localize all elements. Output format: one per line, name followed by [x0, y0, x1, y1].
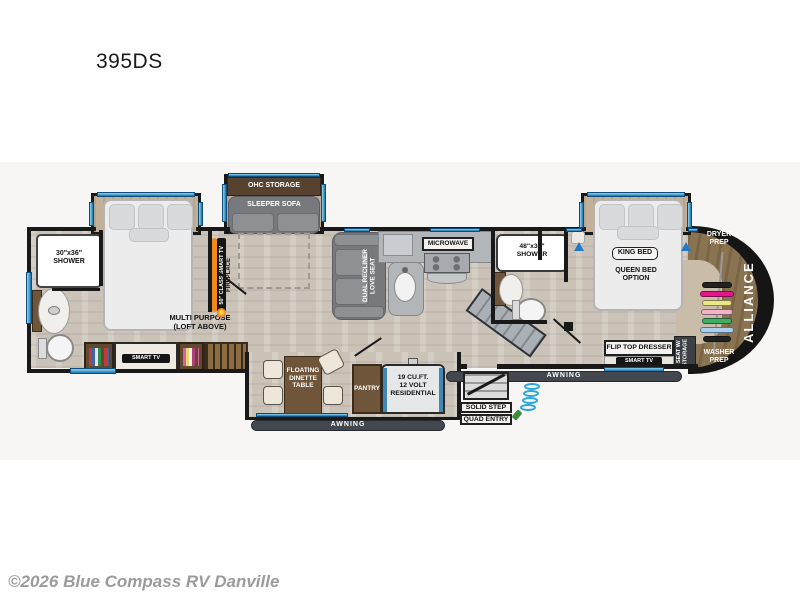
garment [700, 327, 734, 333]
window [26, 272, 32, 324]
wardrobe [178, 342, 204, 372]
dinette-chair [263, 360, 283, 379]
shower1-label: 30"x36" SHOWER [38, 250, 100, 267]
utility-hose [523, 390, 539, 397]
sleeper-sofa-label: SLEEPER SOFA [230, 201, 318, 209]
toilet1-tank [38, 338, 47, 359]
wall [30, 227, 96, 231]
sink1-drain [48, 306, 60, 315]
smart-tv-bed1-label: SMART TV [132, 355, 160, 361]
alliance-brand-label: ALLIANCE [741, 238, 759, 366]
island-faucet [402, 267, 408, 273]
flip-top-dresser-label: FLIP TOP DRESSER [607, 344, 672, 352]
stove [424, 253, 470, 273]
window [687, 202, 692, 228]
fireplace-label: FIREPLACE [226, 240, 236, 310]
bed1-cushion [129, 228, 169, 242]
window [222, 184, 227, 222]
utility-hose [522, 397, 538, 404]
garment [703, 336, 731, 342]
garment [702, 282, 732, 288]
toilet1-bowl [46, 334, 74, 362]
bed2-pillow [657, 204, 683, 230]
window [321, 184, 326, 222]
window [256, 413, 348, 417]
multi-purpose-label: MULTI PURPOSE (LOFT ABOVE) [138, 314, 262, 332]
counter-prep-area [383, 234, 413, 256]
bed1-pillow [138, 204, 164, 230]
microwave-label: MICROWAVE [428, 240, 468, 248]
wall [538, 230, 542, 260]
fridge-trim [439, 368, 443, 412]
washer-prep-label: WASHER PREP [696, 349, 742, 366]
queen-option-label: QUEEN BED OPTION [606, 267, 666, 284]
hanging-clothes [89, 348, 109, 366]
bed1-pillow [167, 204, 193, 230]
king-bed-tag: KING BED [612, 247, 658, 260]
window [579, 202, 584, 228]
solid-step-label: SOLID STEP [466, 404, 506, 412]
ohc-storage-label: OHC STORAGE [248, 182, 300, 190]
king-bed-label: KING BED [618, 249, 652, 257]
dryer-prep-label: DRYER PREP [698, 231, 740, 248]
bed2-cushion [617, 226, 659, 240]
wall [491, 320, 547, 324]
toilet2-tank [512, 300, 520, 320]
wall [196, 227, 230, 231]
awning-right-label: AWNING [547, 372, 582, 380]
garment [701, 309, 733, 315]
vent-icon [574, 242, 584, 251]
seat-storage-label: SEAT W/ STORAGE [676, 337, 694, 367]
microwave: MICROWAVE [422, 237, 474, 251]
island-sink [394, 272, 416, 302]
pantry: PANTRY [352, 364, 382, 414]
window [228, 173, 320, 177]
wall [27, 369, 249, 373]
ohc-storage: OHC STORAGE [227, 177, 321, 196]
quad-entry-tag: QUAD ENTRY [460, 414, 512, 425]
awning-left-label: AWNING [331, 421, 366, 429]
wall [208, 230, 212, 312]
floorplan-page: 395DS ©2026 Blue Compass RV Danville DRY… [0, 0, 800, 600]
smart-tv-bed1: SMART TV [122, 354, 170, 363]
window [430, 228, 480, 232]
window [344, 228, 370, 232]
loft-outline [238, 233, 310, 289]
page-title: 395DS [96, 50, 163, 74]
fireplace-flame-icon [217, 308, 226, 317]
awning-left: AWNING [251, 420, 445, 431]
dinette-label: FLOATING DINETTE TABLE [284, 367, 322, 390]
solid-step-tag: SOLID STEP [460, 402, 512, 413]
garment [700, 291, 734, 297]
window [566, 228, 582, 232]
fridge-label: 19 CU.FT. 12 VOLT RESIDENTIAL [387, 374, 439, 398]
garment [702, 300, 732, 306]
wall [564, 230, 568, 282]
window [198, 202, 203, 226]
window [587, 192, 685, 197]
loft-stairs [204, 342, 248, 372]
stove-front [427, 273, 467, 284]
dinette-chair [323, 386, 343, 405]
wall [497, 364, 698, 369]
utility-hose [524, 383, 540, 390]
window [70, 368, 116, 374]
window [688, 228, 698, 232]
wall [99, 230, 103, 286]
utility-hose [520, 404, 536, 411]
flip-top-dresser: FLIP TOP DRESSER [604, 340, 674, 356]
copyright-watermark: ©2026 Blue Compass RV Danville [8, 572, 279, 592]
window [89, 202, 94, 226]
bed1-pillow [109, 204, 135, 230]
pantry-label: PANTRY [354, 385, 380, 393]
quad-entry-label: QUAD ENTRY [464, 416, 509, 424]
wall [245, 352, 249, 420]
dinette-chair [263, 386, 283, 405]
garment [702, 318, 732, 324]
wall [52, 288, 100, 291]
hanging-clothes [183, 348, 199, 366]
sofa-cushion [232, 213, 274, 232]
sofa-cushion [277, 213, 319, 232]
shower2-label: 48"x30" SHOWER [498, 243, 566, 259]
window [97, 192, 195, 197]
vent-icon [681, 242, 691, 251]
wall [459, 364, 467, 369]
wall [491, 230, 495, 324]
